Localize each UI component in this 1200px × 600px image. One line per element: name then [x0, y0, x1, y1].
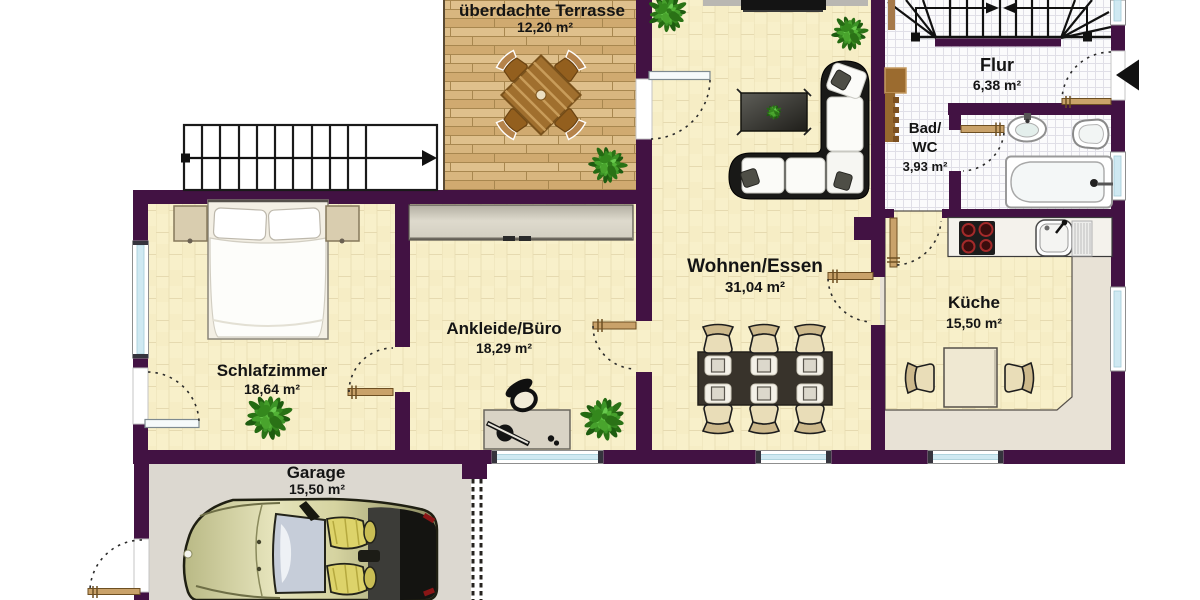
svg-text:WC: WC: [913, 139, 938, 156]
svg-text:12,20 m²: 12,20 m²: [517, 19, 573, 35]
svg-text:3,93 m²: 3,93 m²: [903, 159, 948, 174]
svg-text:15,50 m²: 15,50 m²: [289, 481, 345, 497]
svg-text:Flur: Flur: [980, 55, 1014, 75]
svg-text:Bad/: Bad/: [909, 120, 942, 137]
svg-text:Küche: Küche: [948, 293, 1000, 312]
svg-text:18,29 m²: 18,29 m²: [476, 340, 532, 356]
svg-text:6,38 m²: 6,38 m²: [973, 77, 1022, 93]
svg-text:überdachte Terrasse: überdachte Terrasse: [459, 1, 625, 20]
svg-text:31,04 m²: 31,04 m²: [725, 279, 785, 296]
svg-text:Wohnen/Essen: Wohnen/Essen: [687, 256, 823, 277]
svg-text:Ankleide/Büro: Ankleide/Büro: [446, 319, 561, 338]
svg-text:15,50 m²: 15,50 m²: [946, 315, 1002, 331]
svg-text:Garage: Garage: [287, 463, 346, 482]
svg-text:18,64 m²: 18,64 m²: [244, 381, 300, 397]
svg-text:Schlafzimmer: Schlafzimmer: [217, 361, 328, 380]
